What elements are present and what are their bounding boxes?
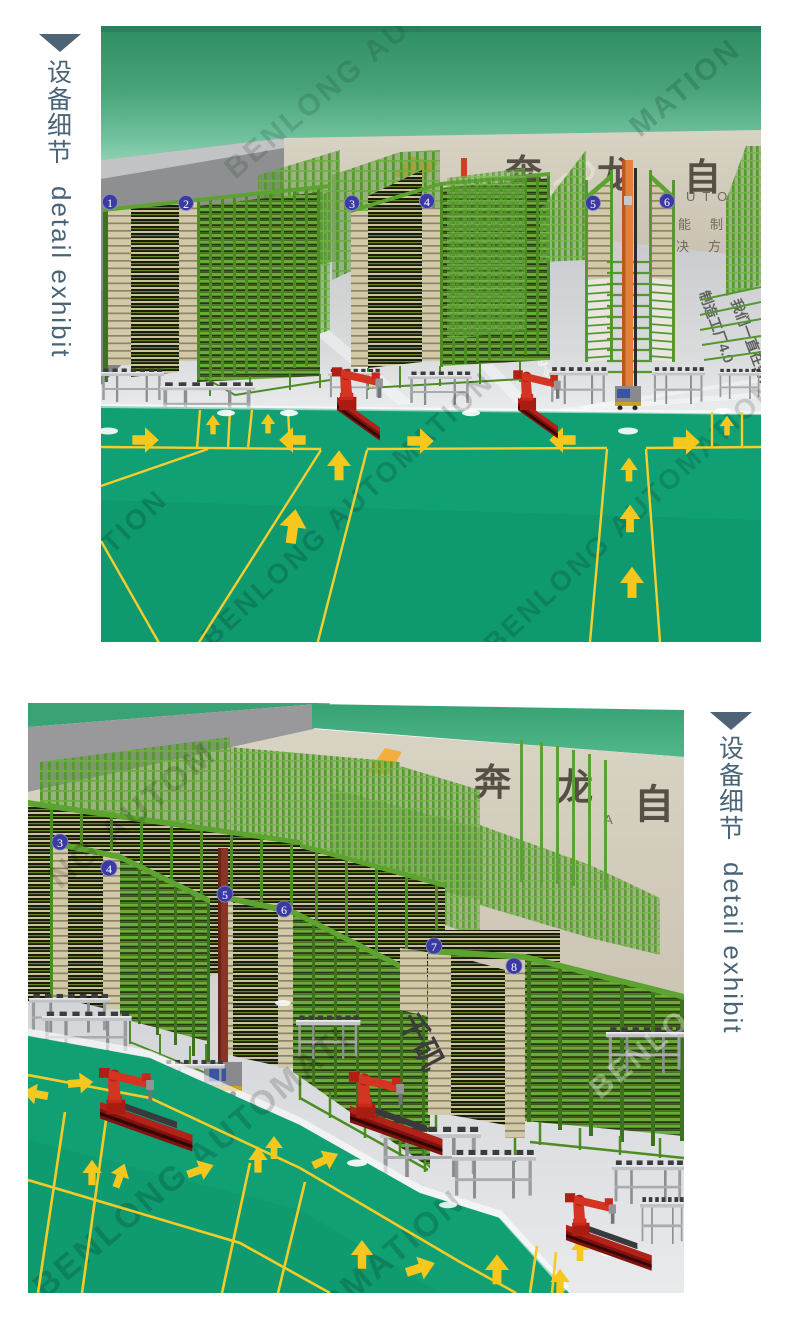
svg-text:2: 2: [183, 197, 189, 211]
svg-text:6: 6: [281, 903, 287, 917]
svg-text:4: 4: [424, 195, 430, 209]
svg-text:5: 5: [590, 197, 596, 211]
svg-text:3: 3: [349, 197, 355, 211]
svg-text:4: 4: [106, 862, 112, 876]
svg-text:6: 6: [664, 195, 670, 209]
svg-text:8: 8: [511, 960, 517, 974]
svg-text:5: 5: [222, 888, 228, 902]
svg-text:3: 3: [57, 836, 63, 850]
svg-text:1: 1: [107, 196, 113, 210]
svg-text:7: 7: [431, 940, 437, 954]
svg-text:自: 自: [634, 783, 674, 827]
